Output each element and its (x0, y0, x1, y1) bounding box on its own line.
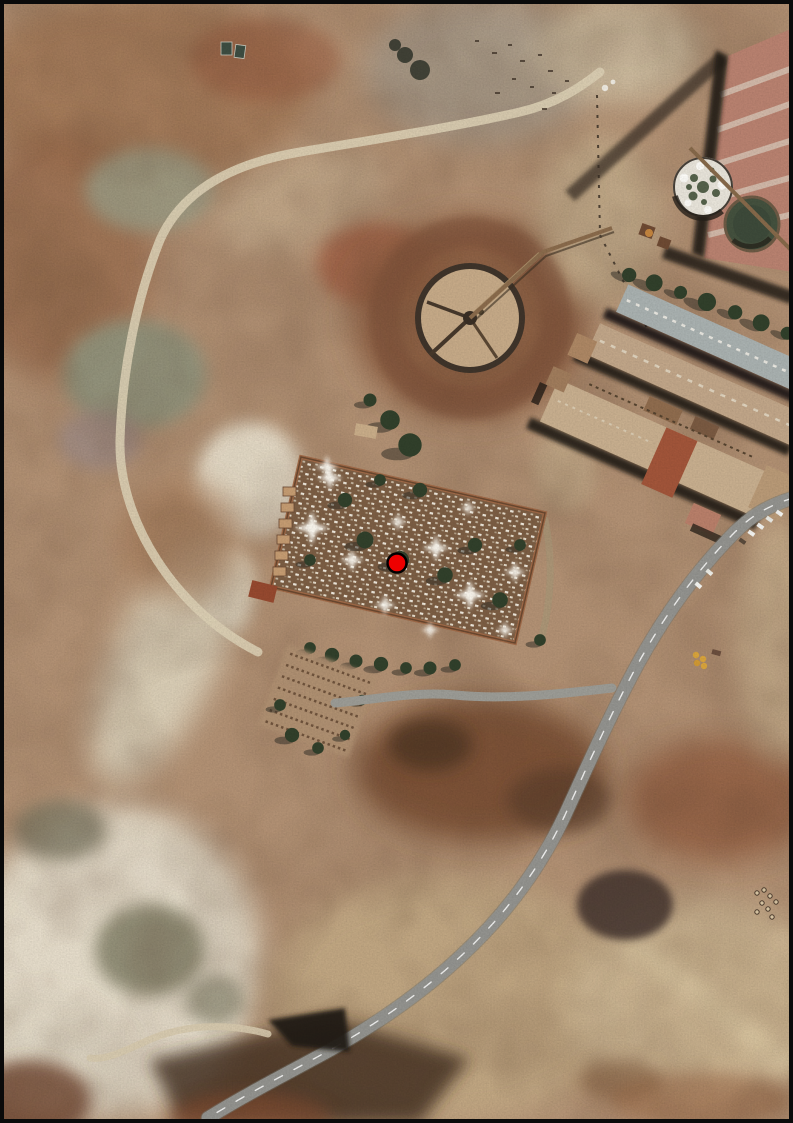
aerial-imagery (0, 0, 793, 1123)
location-marker[interactable] (388, 554, 407, 573)
aerial-map[interactable] (0, 0, 793, 1123)
